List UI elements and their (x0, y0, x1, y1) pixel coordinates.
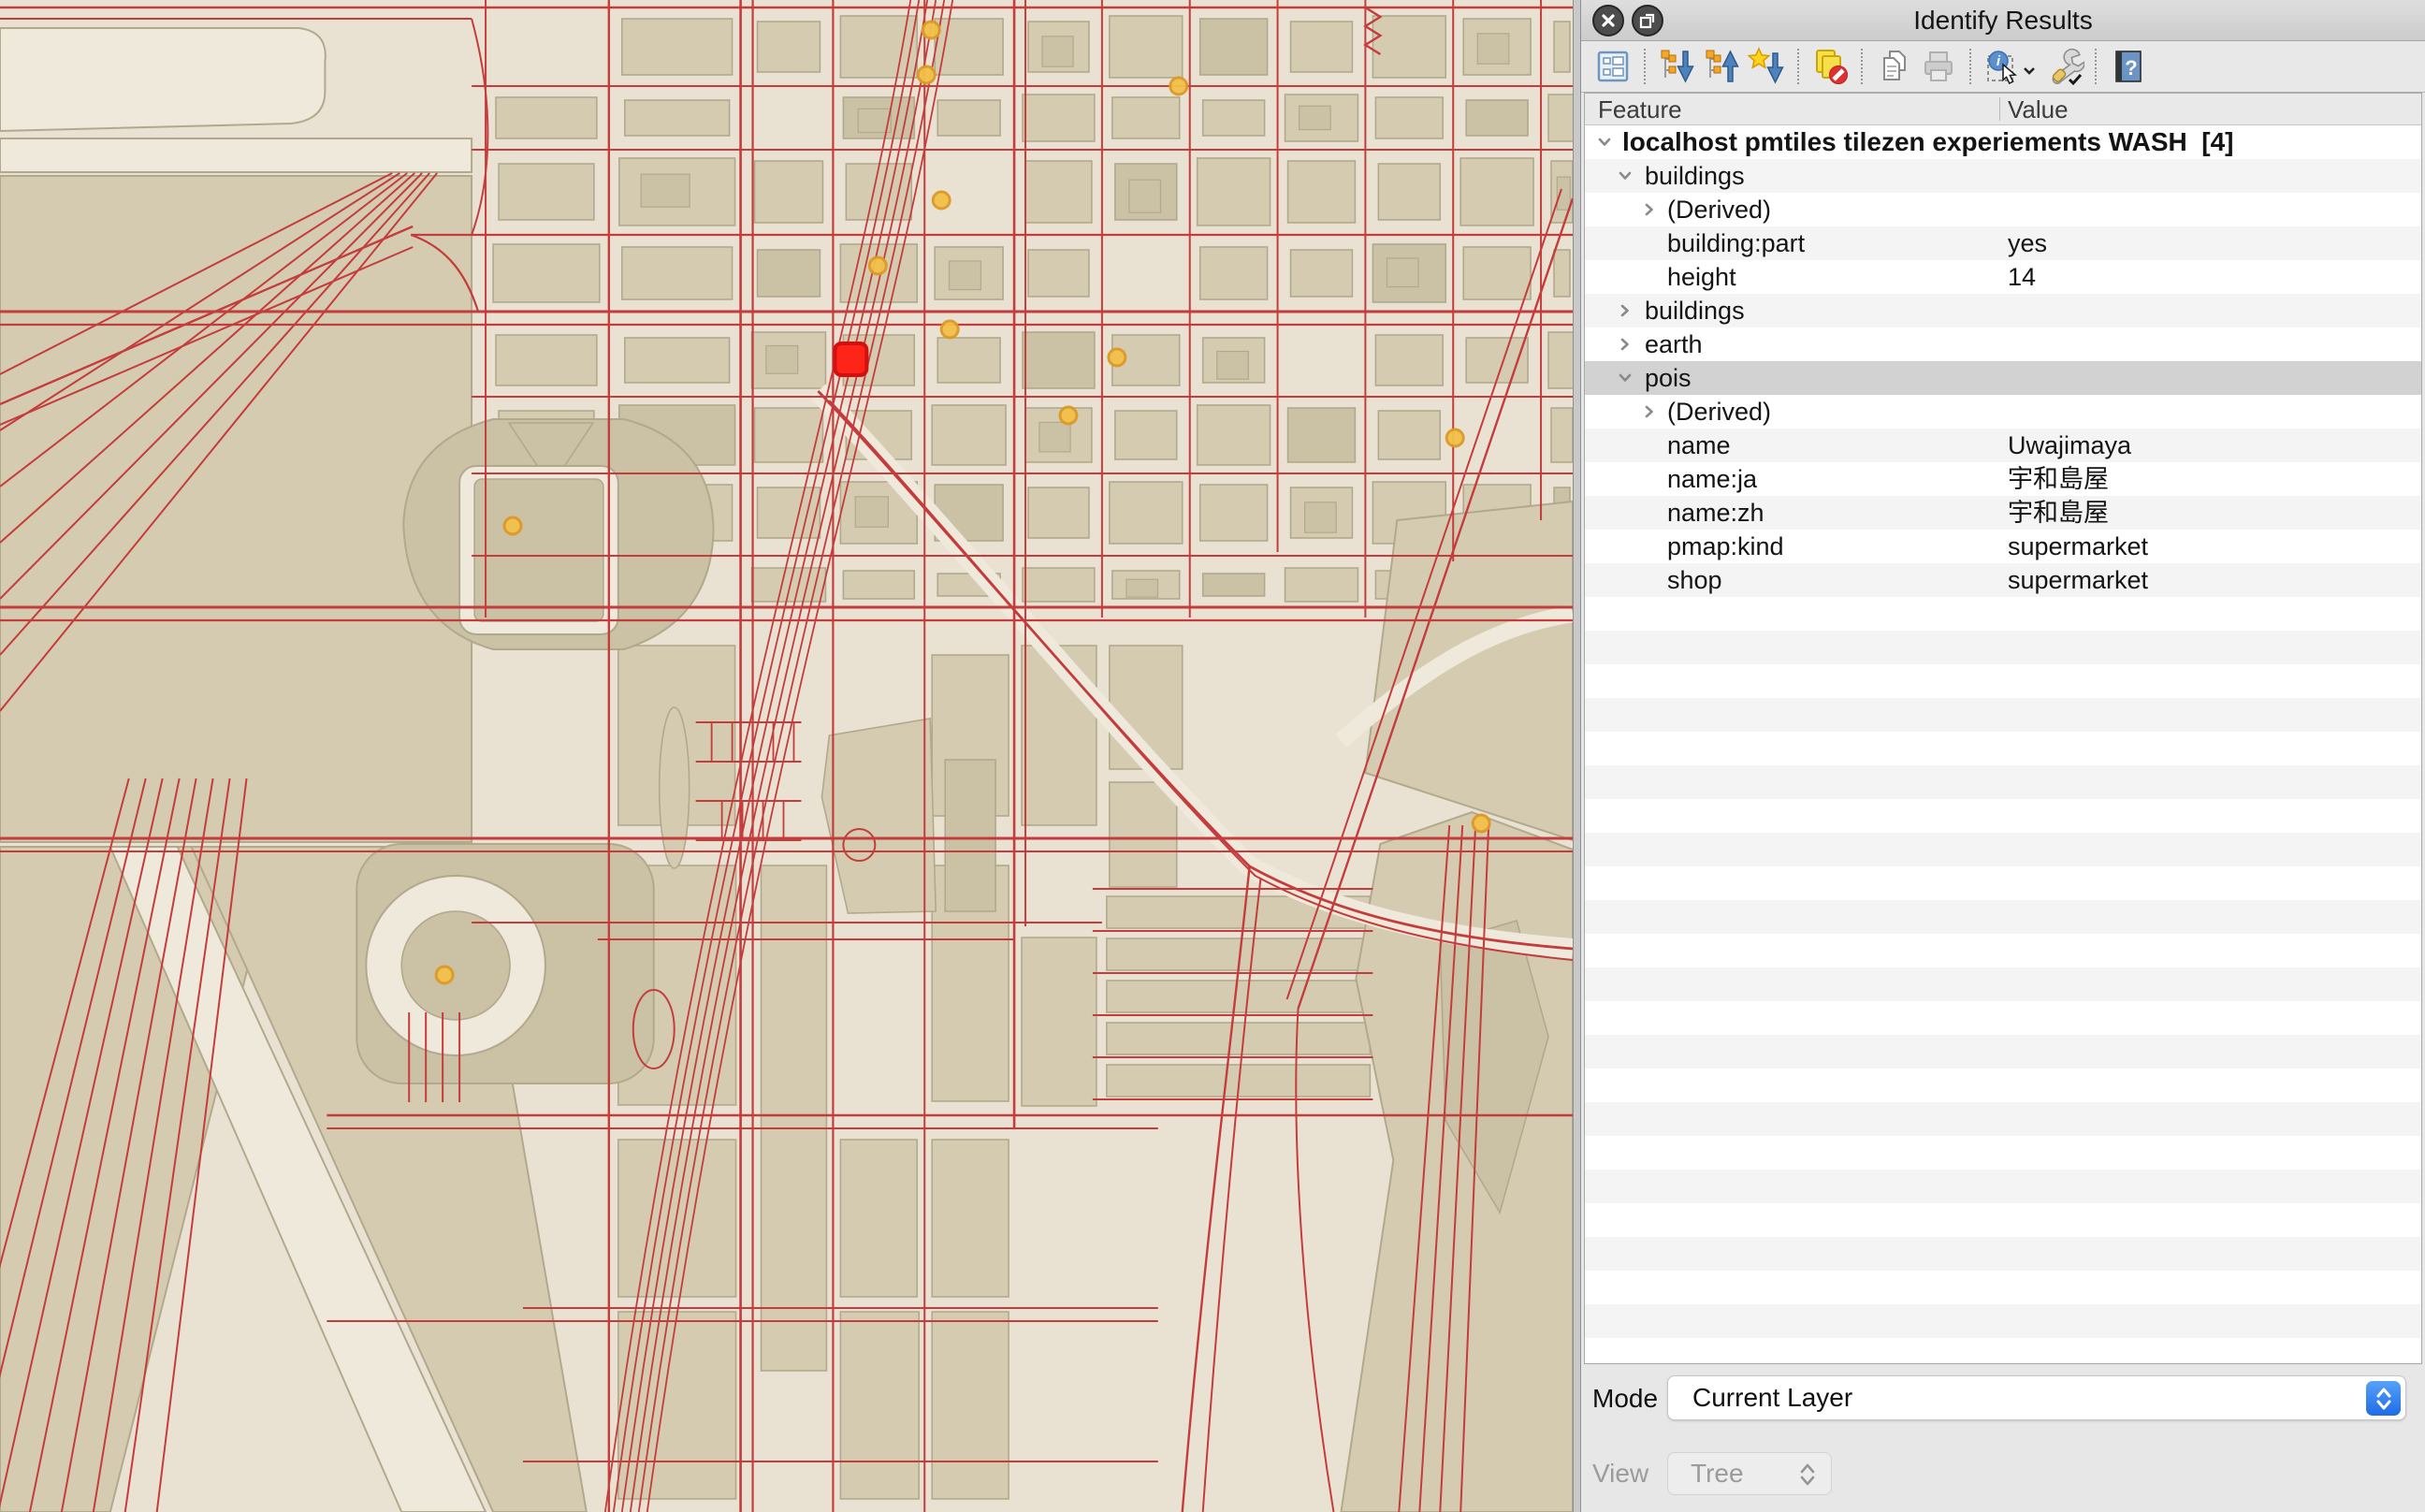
table-row-empty (1585, 900, 2421, 934)
copy-feature-button[interactable] (1871, 44, 1916, 89)
tree-header[interactable]: Feature Value (1585, 94, 2421, 125)
copy-icon (1873, 46, 1914, 87)
identify-settings-button[interactable] (2041, 44, 2086, 89)
table-row[interactable]: name:zh宇和島屋 (1585, 496, 2421, 530)
mode-selected-value: Current Layer (1692, 1376, 1852, 1419)
row-value: supermarket (2008, 563, 2148, 597)
toolbar-separator (1644, 49, 1646, 84)
table-row[interactable]: earth (1585, 327, 2421, 361)
table-row-empty (1585, 597, 2421, 631)
table-row[interactable]: (Derived) (1585, 193, 2421, 226)
table-row-empty (1585, 1035, 2421, 1069)
table-row-empty (1585, 1203, 2421, 1237)
table-row-empty (1585, 1069, 2421, 1102)
collapse-tree-icon (1701, 46, 1742, 87)
identify-results-panel: Identify Results (1581, 0, 2425, 1512)
row-feature: pois (1645, 361, 1692, 395)
identify-toolbar: i ? (1581, 41, 2425, 93)
table-row-empty (1585, 799, 2421, 833)
expand-new-results-icon (1746, 46, 1787, 87)
row-value: 宇和島屋 (2008, 496, 2109, 530)
toolbar-separator (1969, 49, 1971, 84)
row-feature: building:part (1667, 226, 1805, 260)
table-row-empty (1585, 833, 2421, 866)
table-row-empty (1585, 866, 2421, 900)
row-feature: earth (1645, 327, 1703, 361)
row-feature: buildings (1645, 294, 1745, 327)
identified-feature-marker (835, 343, 866, 375)
row-value: 14 (2008, 260, 2036, 294)
form-view-button[interactable] (1590, 44, 1635, 89)
expand-new-results-button[interactable] (1744, 44, 1789, 89)
row-feature: localhost pmtiles tilezen experiements W… (1622, 125, 2234, 159)
view-stepper-icon (1793, 1457, 1822, 1491)
mode-select[interactable]: Current Layer (1667, 1375, 2406, 1420)
chevron-right-icon[interactable] (1639, 199, 1660, 220)
table-row-empty (1585, 1237, 2421, 1271)
chevron-right-icon[interactable] (1615, 334, 1635, 355)
chevron-down-icon[interactable] (1594, 132, 1615, 153)
help-icon: ? (2107, 46, 2148, 87)
expand-tree-button[interactable] (1654, 44, 1699, 89)
table-row-empty (1585, 1304, 2421, 1338)
table-row[interactable]: nameUwajimaya (1585, 429, 2421, 462)
table-row[interactable]: (Derived) (1585, 395, 2421, 429)
chevron-right-icon[interactable] (1639, 401, 1660, 422)
poi-dot (436, 967, 453, 983)
row-feature: name (1667, 429, 1731, 462)
table-row-empty (1585, 967, 2421, 1001)
poi-dot (504, 517, 521, 534)
poi-dot (922, 22, 939, 38)
chevron-down-icon[interactable] (1615, 368, 1635, 388)
table-row-empty (1585, 1338, 2421, 1364)
poi-dot (1109, 349, 1125, 366)
row-value: yes (2008, 226, 2047, 260)
table-row[interactable]: pmap:kindsupermarket (1585, 530, 2421, 563)
mode-stepper-icon[interactable] (2366, 1381, 2401, 1416)
poi-dot (941, 321, 958, 338)
tree-rows: localhost pmtiles tilezen experiements W… (1585, 125, 2421, 1364)
table-row-empty (1585, 1271, 2421, 1304)
map-canvas[interactable] (0, 0, 1573, 1512)
print-button[interactable] (1916, 44, 1961, 89)
row-value: 宇和島屋 (2008, 462, 2109, 496)
table-row-empty (1585, 765, 2421, 799)
table-row[interactable]: height14 (1585, 260, 2421, 294)
toolbar-separator (1797, 49, 1799, 84)
view-select: Tree (1667, 1452, 1832, 1495)
table-row[interactable]: localhost pmtiles tilezen experiements W… (1585, 125, 2421, 159)
row-feature: name:zh (1667, 496, 1764, 530)
table-row-empty (1585, 664, 2421, 698)
table-row-empty (1585, 934, 2421, 967)
row-feature: height (1667, 260, 1736, 294)
feature-column-header[interactable]: Feature (1598, 94, 1682, 125)
identify-icon: i (1982, 46, 2040, 87)
table-row[interactable]: name:ja宇和島屋 (1585, 462, 2421, 496)
poi-dot (869, 257, 886, 274)
clear-results-icon (1809, 46, 1851, 87)
table-row-empty (1585, 732, 2421, 765)
form-view-icon (1592, 46, 1634, 87)
row-feature: name:ja (1667, 462, 1757, 496)
poi-dot (918, 66, 935, 83)
view-label: View (1592, 1452, 1648, 1495)
table-row[interactable]: building:partyes (1585, 226, 2421, 260)
map-rendering (0, 0, 1573, 1512)
table-row-empty (1585, 1170, 2421, 1203)
table-row-empty (1585, 631, 2421, 664)
row-feature: (Derived) (1667, 193, 1771, 226)
clear-results-button[interactable] (1808, 44, 1852, 89)
table-row[interactable]: buildings (1585, 294, 2421, 327)
chevron-down-icon[interactable] (1615, 166, 1635, 186)
wrench-icon (2043, 46, 2084, 87)
print-icon (1918, 46, 1959, 87)
poi-dot (1060, 407, 1077, 424)
chevron-right-icon[interactable] (1615, 300, 1635, 321)
expand-tree-icon (1656, 46, 1697, 87)
poi-dot (1473, 815, 1489, 832)
table-row-empty (1585, 1102, 2421, 1136)
toolbar-separator (2095, 49, 2097, 84)
row-value: Uwajimaya (2008, 429, 2131, 462)
row-feature: buildings (1645, 159, 1745, 193)
poi-dot (933, 192, 950, 209)
table-row-empty (1585, 1001, 2421, 1035)
mode-label: Mode (1592, 1377, 1658, 1420)
value-column-header[interactable]: Value (2008, 94, 2069, 125)
results-tree: Feature Value localhost pmtiles tilezen … (1584, 93, 2422, 1364)
table-row-empty (1585, 1136, 2421, 1170)
column-divider[interactable] (1999, 97, 2000, 121)
help-button[interactable]: ? (2105, 44, 2150, 89)
svg-text:?: ? (2125, 56, 2137, 80)
table-row[interactable]: buildings (1585, 159, 2421, 193)
row-feature: pmap:kind (1667, 530, 1784, 563)
panel-title: Identify Results (1581, 0, 2425, 41)
table-row[interactable]: pois (1585, 361, 2421, 395)
poi-dot (1170, 78, 1187, 94)
table-row-empty (1585, 698, 2421, 732)
poi-dot (1446, 429, 1463, 446)
panel-splitter[interactable] (1573, 0, 1581, 1512)
view-selected-value: Tree (1691, 1453, 1744, 1494)
table-row[interactable]: shopsupermarket (1585, 563, 2421, 597)
row-value: supermarket (2008, 530, 2148, 563)
row-feature: (Derived) (1667, 395, 1771, 429)
row-feature: shop (1667, 563, 1722, 597)
toolbar-separator (1861, 49, 1863, 84)
collapse-tree-button[interactable] (1699, 44, 1744, 89)
identify-feature-button[interactable]: i (1980, 44, 2041, 89)
panel-titlebar[interactable]: Identify Results (1581, 0, 2425, 41)
